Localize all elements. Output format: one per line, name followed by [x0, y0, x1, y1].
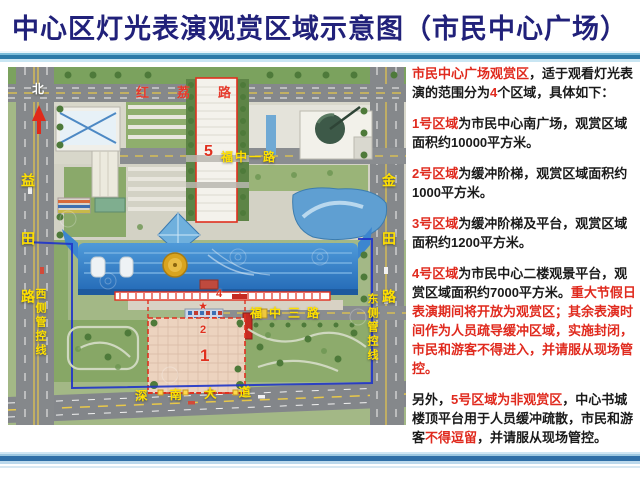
text-segment: 2号区域	[412, 166, 458, 181]
text-segment: 另外，	[412, 392, 451, 407]
north-label: 北	[32, 83, 44, 95]
map-artwork	[8, 67, 406, 425]
exhibit-building	[58, 198, 90, 213]
text-segment: 3号区域	[412, 216, 458, 231]
text-segment: 市民中心广场观赏区	[412, 66, 529, 81]
zone4-label: 4	[216, 289, 222, 300]
art-museum-building	[293, 188, 387, 240]
slide: 中心区灯光表演观赏区域示意图（市民中心广场）	[0, 0, 640, 481]
panel-paragraph-zone2: 2号区域为缓冲阶梯，观赏区域面积约1000平方米。	[412, 164, 636, 202]
page-title: 中心区灯光表演观赏区域示意图（市民中心广场）	[0, 7, 640, 46]
control-line-label-west: 西侧管控线	[34, 288, 45, 358]
panel-paragraph-intro: 市民中心广场观赏区，适于观看灯光表演的范围分为4个区域，具体如下：	[412, 64, 636, 102]
zone2-label: 2	[200, 325, 206, 336]
text-segment: 1号区域	[412, 116, 458, 131]
site-map: 北 红荔路 益田路 金田路 福中一路 福中三路 深南大道 西侧管控线 东侧管控线…	[8, 67, 406, 425]
road-label-fuzhong1: 福中一路	[221, 151, 277, 163]
road-label-yitian: 益田路	[21, 173, 35, 347]
zone1-label: 1	[200, 347, 209, 364]
text-segment: 5号区域为非观赏区	[451, 392, 562, 407]
control-line-label-east: 东侧管控线	[366, 293, 377, 363]
title-divider-bar	[0, 51, 640, 62]
description-panel: 市民中心广场观赏区，适于观看灯光表演的范围分为4个区域，具体如下： 1号区域为市…	[412, 64, 636, 454]
text-segment: 不得逗留	[425, 430, 477, 445]
road-label-jintian: 金田路	[382, 173, 396, 347]
text-segment: 4号区域	[412, 266, 458, 281]
green-pool	[95, 198, 125, 212]
road-label-hongli: 红荔路	[136, 86, 259, 99]
text-segment: 个区域，具体如下：	[497, 85, 614, 100]
panel-paragraph-zone4: 4号区域为市民中心二楼观景平台，观赏区域面积约7000平方米。重大节假日表演期间…	[412, 264, 636, 378]
pool-strip	[266, 115, 276, 155]
footer-divider-bar	[0, 452, 640, 464]
text-segment: ，并请服从现场管控。	[477, 430, 607, 445]
zone5-label: 5	[204, 144, 213, 160]
footer-divider-line	[0, 466, 640, 468]
star-icon: ★	[199, 302, 207, 311]
zone4-barrier-band	[115, 292, 330, 300]
panel-paragraph-zone1: 1号区域为市民中心南广场，观赏区域面积约10000平方米。	[412, 114, 636, 152]
road-label-fuzhong3: 福中三路	[250, 307, 326, 319]
panel-paragraph-zone3: 3号区域为缓冲阶梯及平台，观赏区域面积约1200平方米。	[412, 214, 636, 252]
panel-paragraph-zone5: 另外，5号区域为非观赏区，中心书城楼顶平台用于人员缓冲疏散，市民和游客不得逗留，…	[412, 390, 636, 447]
